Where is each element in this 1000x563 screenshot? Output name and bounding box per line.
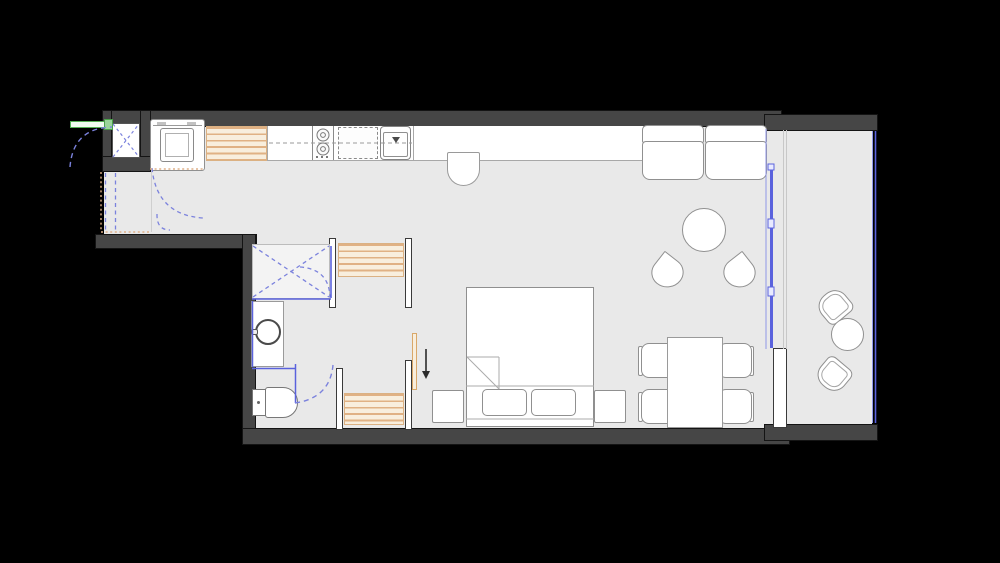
kitchen-sink-basin [383,132,408,157]
toilet-button [257,401,260,404]
wardrobe-bedroom-slatted [344,393,404,425]
shower-tray [252,244,330,299]
sliding-door-panel [412,333,417,390]
balcony-table [831,318,864,351]
nightstand-right [594,390,626,423]
dishwasher [338,127,378,159]
pillow-left [482,389,527,416]
balcony-railing-lines [873,131,876,423]
washbasin-faucet [251,329,258,335]
washer-door-inner [165,133,189,157]
shaft [112,123,140,158]
balcony-wall-pier [773,348,787,428]
wall-stub-bedroom-right [405,360,412,430]
washer-knob-right [187,122,196,125]
wardrobe-hall-slatted [338,243,404,277]
cooktop [312,126,334,160]
wall-bottom [242,428,790,445]
washer-knob-left [157,122,166,125]
washbasin [255,319,281,345]
wall-stub-wardrobe-right [405,238,412,308]
dining-table [667,337,723,428]
wall-shaft-bottom [102,156,151,172]
counter-stool [447,152,480,186]
toilet-bowl [265,387,298,418]
nightstand-left [432,390,464,423]
counter-divider [413,126,414,161]
wall-stub-bedroom-left [336,368,343,430]
entry-door-jamb [104,119,113,130]
pillow-right [531,389,576,416]
wall-top-balcony [764,114,878,131]
floor-plan [0,0,1000,563]
kitchen-cabinet-slatted [206,126,267,161]
dining-chair-4 [718,389,752,424]
dining-chair-2 [718,343,752,378]
wall-stub-wardrobe-left [329,238,336,308]
entry-cabinet-edge [151,168,152,232]
sofa-seat-left [642,141,704,180]
coffee-table [682,208,726,252]
sofa-seat-right [705,141,767,180]
wall-step [95,234,257,249]
